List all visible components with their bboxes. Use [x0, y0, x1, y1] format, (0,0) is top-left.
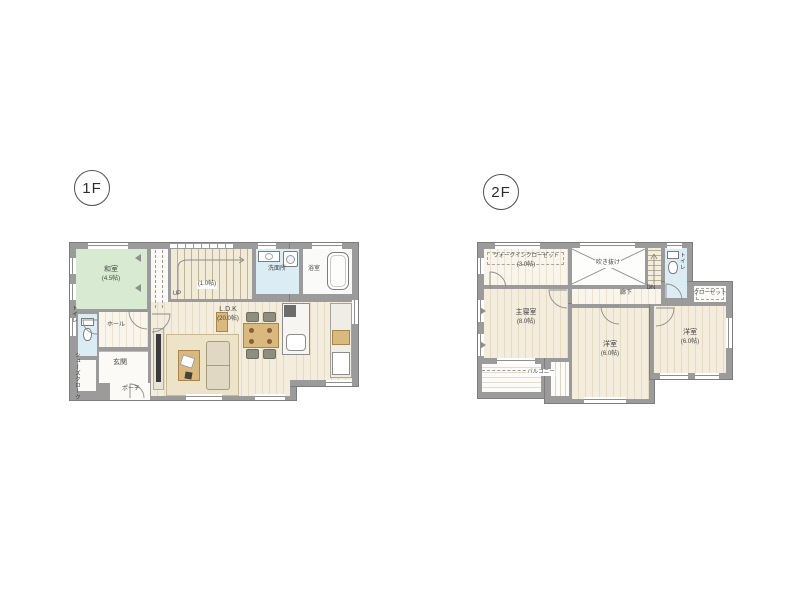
room-balcony-corner: [551, 362, 569, 396]
window-bedroom-center-bottom: [584, 397, 626, 403]
window-ldk-bottom-1: [186, 394, 222, 400]
washer-drum-icon: [286, 255, 295, 264]
casement-arrow-1: [480, 307, 486, 315]
hall-label: ホール: [107, 322, 125, 330]
window-washitsu-left-2: [70, 284, 76, 300]
balcony-label: バルコニー: [526, 369, 555, 376]
bedroom-center-label: 洋室: [603, 341, 617, 350]
window-kitchen-bottom: [326, 380, 352, 386]
table-item: [184, 371, 192, 379]
genkan-label: 玄関: [113, 359, 127, 368]
porch-label: ポーチ: [122, 386, 140, 394]
window-kitchen-right: [352, 300, 358, 324]
dining-plate-4: [267, 339, 272, 344]
senmenjo-label: 洗面所: [268, 266, 286, 274]
closet-2f-label: クローゼット: [693, 290, 726, 297]
dining-chair-1: [246, 312, 259, 322]
dining-chair-2: [263, 312, 276, 322]
sliding-door-arrow-2: [135, 284, 141, 292]
toilet-1f-label: トイレ: [70, 305, 77, 323]
room-stairs-1f: [171, 249, 252, 299]
dining-plate-3: [249, 339, 254, 344]
window-bedroom-right-side: [726, 318, 732, 348]
floorplan-canvas: 1F: [0, 0, 800, 600]
vanity-sink-icon: [265, 253, 273, 260]
bathtub-inner-line: [330, 255, 346, 287]
stove-icon: [284, 305, 296, 317]
dining-plate-2: [267, 328, 272, 333]
window-master-balcony-slider: [497, 358, 535, 364]
window-ldk-bottom-2: [255, 394, 285, 400]
sliding-door-arrow-1: [135, 254, 141, 262]
kitchen-sink-icon: [286, 334, 306, 351]
master-bedroom-size: (8.0帖): [517, 319, 535, 327]
window-bedroom-right-bottom-1: [660, 373, 688, 379]
room-hall: [99, 312, 148, 347]
washitsu-size: (4.5帖): [102, 276, 120, 284]
toilet-tank-icon: [81, 318, 94, 326]
wic-size: (3.0帖): [517, 262, 535, 270]
master-bedroom-label: 主寝室: [516, 309, 537, 318]
dining-table: [243, 323, 279, 348]
toilet-bowl-icon: [83, 328, 92, 341]
refrigerator-icon: [332, 352, 350, 375]
sofa-cushion-line: [206, 365, 230, 366]
void-label: 吹き抜け: [595, 260, 621, 268]
window-bedroom-right-bottom-2: [695, 373, 719, 379]
window-bath-top: [312, 243, 342, 249]
room-stairs-2f: [648, 248, 661, 285]
yokushitsu-label: 浴室: [308, 266, 320, 274]
window-wic-left: [478, 258, 484, 274]
window-washitsu-top: [88, 243, 128, 249]
window-toilet-2f-top: [667, 243, 682, 249]
stairs-1f-size: (1.0帖): [197, 281, 217, 289]
shoes-cloak-label: シューズクローク: [73, 352, 80, 400]
ldk-label: L.D.K: [219, 306, 237, 315]
bedroom-right-label: 洋室: [683, 329, 697, 338]
dining-chair-4: [263, 349, 276, 359]
stairs-2f-direction: DN: [647, 285, 656, 293]
window-washitsu-left-1: [70, 258, 76, 274]
casement-arrow-2: [480, 341, 486, 349]
oshiire-dashed-lines: [155, 250, 163, 308]
window-wic-top: [495, 243, 540, 249]
floor2-badge: 2F: [483, 174, 519, 210]
hallway-2f-label: 廊下: [620, 290, 632, 298]
washitsu-label: 和室: [104, 266, 118, 275]
dining-plate-1: [249, 328, 254, 333]
ldk-size: (20.0帖): [217, 316, 239, 324]
wic-label: ウォークインクローゼット: [493, 253, 559, 260]
room-shoes-cloak: [78, 360, 96, 391]
window-stairs-top: [170, 243, 234, 249]
bedroom-center-size: (6.0帖): [601, 351, 619, 359]
toilet-2f-bowl-icon: [668, 261, 678, 274]
dining-chair-3: [246, 349, 259, 359]
kitchen-cart: [332, 330, 350, 345]
window-void-top: [580, 243, 635, 249]
toilet-2f-label: トイレ: [678, 252, 685, 270]
window-senmenjo-top: [258, 243, 276, 249]
floor1-badge: 1F: [74, 170, 110, 206]
stairs-1f-direction: UP: [173, 291, 181, 299]
tv-icon: [156, 334, 161, 382]
bedroom-right-size: (6.0帖): [681, 339, 699, 347]
